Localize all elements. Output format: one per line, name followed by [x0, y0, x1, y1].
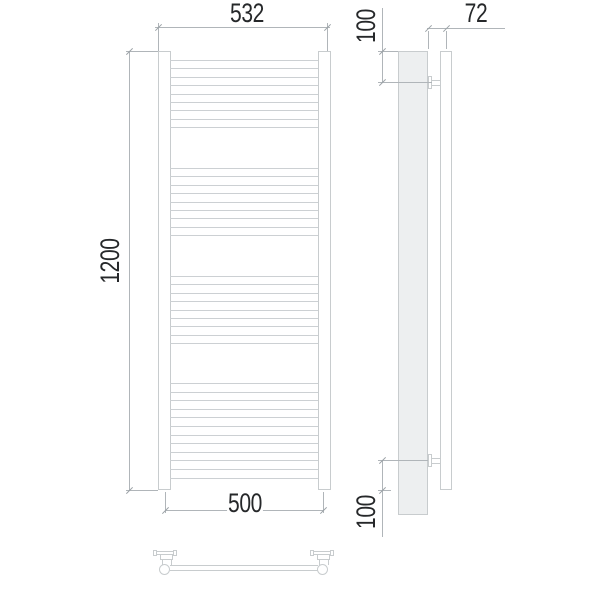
rung-line	[170, 60, 318, 61]
left-bracket-stem-lower	[162, 559, 172, 565]
rung-line	[170, 301, 318, 302]
top-bracket-arm	[432, 80, 440, 86]
rung-line	[170, 68, 318, 69]
rung-line	[170, 185, 318, 186]
rung-line	[170, 293, 318, 294]
rung-line	[170, 392, 318, 393]
rung-line	[170, 110, 318, 111]
rung-line	[170, 343, 318, 344]
rung-line	[170, 452, 318, 453]
rung-line	[170, 318, 318, 319]
dimension-axis-width-label: 500	[227, 489, 263, 517]
rung-line	[170, 119, 318, 120]
rung-line	[170, 335, 318, 336]
dimension-line	[382, 8, 383, 82]
top-view-left-collector-circle	[159, 564, 170, 575]
rung-line	[170, 478, 318, 479]
rung-line	[170, 176, 318, 177]
dimension-bottom-bracket-offset-label: 100	[352, 491, 380, 533]
bottom-bracket-arm	[432, 458, 440, 464]
rung-line	[170, 94, 318, 95]
rung-line	[170, 193, 318, 194]
extension-line	[126, 51, 158, 52]
rung-line	[170, 326, 318, 327]
rung-line	[170, 460, 318, 461]
extension-line	[126, 490, 158, 491]
rung-line	[170, 284, 318, 285]
rung-line	[170, 400, 318, 401]
rung-line	[170, 417, 318, 418]
rung-line	[170, 77, 318, 78]
rung-line	[170, 276, 318, 277]
rung-line	[170, 227, 318, 228]
radiator-dimension-drawing: 532 1200 500 72	[0, 0, 600, 600]
right-bracket-stem-lower	[319, 559, 329, 565]
extension-line	[428, 31, 429, 49]
dimension-line	[155, 27, 330, 28]
rung-line	[170, 218, 318, 219]
side-wall-rail	[440, 51, 452, 490]
rung-line	[170, 127, 318, 128]
dimension-overall-width-label: 532	[224, 0, 271, 27]
rung-line	[170, 102, 318, 103]
front-right-collector	[318, 51, 331, 490]
dimension-top-bracket-offset-label: 100	[352, 5, 380, 47]
rung-line	[170, 85, 318, 86]
dimension-height-label: 1200	[96, 234, 124, 289]
rung-line	[170, 383, 318, 384]
rung-line	[170, 469, 318, 470]
side-body-profile	[398, 51, 428, 515]
rung-line	[170, 235, 318, 236]
rung-line	[170, 210, 318, 211]
dimension-depth-label: 72	[460, 0, 491, 27]
extension-line	[378, 82, 432, 83]
extension-line	[378, 460, 428, 461]
rung-line	[170, 310, 318, 311]
left-bracket-flange	[153, 550, 157, 556]
rung-line	[170, 426, 318, 427]
rung-line	[170, 409, 318, 410]
dimension-line	[129, 51, 130, 490]
rung-line	[170, 443, 318, 444]
right-bracket-flange	[310, 550, 314, 556]
top-view-bar	[170, 565, 318, 571]
extension-line	[446, 31, 447, 49]
rung-line	[170, 435, 318, 436]
dimension-line	[427, 28, 505, 29]
rung-line	[170, 202, 318, 203]
rung-line	[170, 168, 318, 169]
top-view-right-collector-circle	[317, 564, 328, 575]
left-bracket-flange	[173, 550, 177, 556]
dimension-line	[382, 460, 383, 537]
right-bracket-flange	[330, 550, 334, 556]
